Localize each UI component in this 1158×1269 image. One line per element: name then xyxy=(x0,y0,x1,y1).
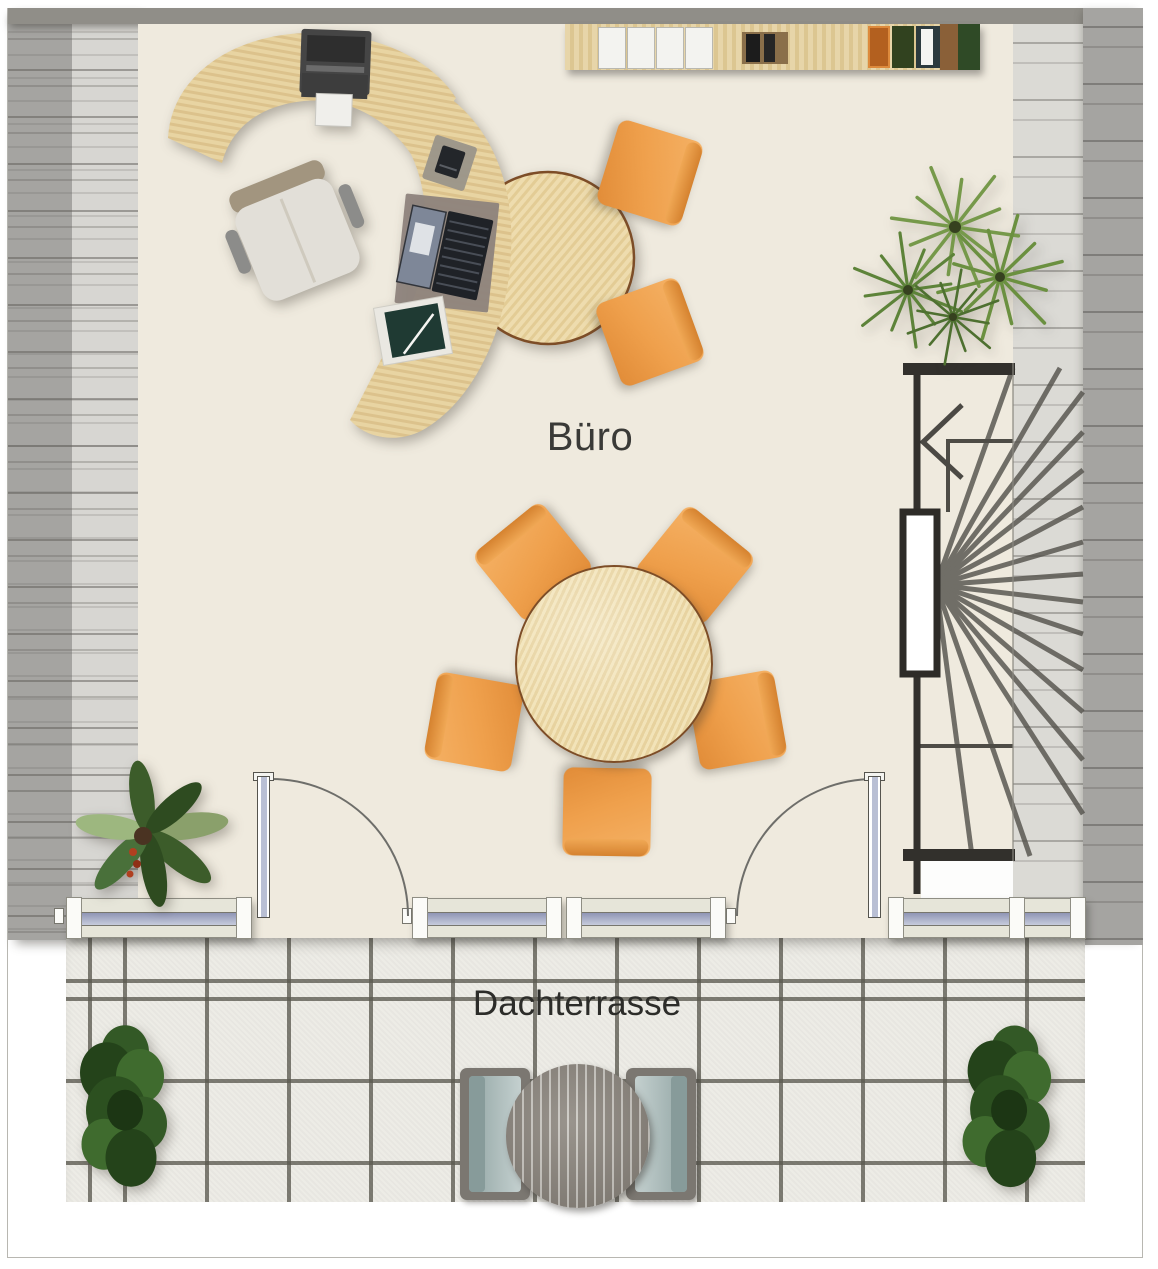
door-swing-arcs xyxy=(250,770,890,925)
book xyxy=(764,34,775,62)
storage-box-green xyxy=(892,26,914,68)
terrace-door-left xyxy=(257,776,270,918)
winder-staircase xyxy=(895,358,1095,868)
book xyxy=(746,34,760,62)
notebook-with-pen xyxy=(373,296,452,365)
stair-handrail-wall xyxy=(903,512,937,674)
palm-plant xyxy=(850,165,1060,380)
door-stop xyxy=(54,908,64,924)
office-swivel-chair xyxy=(211,151,380,311)
desk-group xyxy=(140,20,670,460)
paper-tray xyxy=(685,27,713,69)
window-glass xyxy=(903,912,1071,926)
terrace-bushes xyxy=(60,1000,1090,1220)
stair-bottom-wall xyxy=(903,849,1015,861)
shelf-end-cabinet xyxy=(940,24,958,70)
room-label-office: Büro xyxy=(470,415,710,460)
storage-box-orange xyxy=(868,26,890,68)
window-glass xyxy=(81,912,237,926)
door-arc-right xyxy=(737,779,874,916)
terrace-door-right xyxy=(868,776,881,918)
window-mullion xyxy=(1009,897,1025,939)
printer xyxy=(298,29,371,127)
window-right xyxy=(888,898,1086,938)
window-post xyxy=(1070,897,1086,939)
leaves xyxy=(74,759,230,909)
meeting-table xyxy=(515,565,713,763)
meeting-chair xyxy=(423,671,525,773)
door-arc-left xyxy=(271,779,408,916)
window-post xyxy=(888,897,904,939)
shelf-end-books xyxy=(958,24,980,70)
stair-landing xyxy=(921,861,1013,898)
leaf-plant xyxy=(75,760,230,910)
floor-plan: Büro Dachterrasse xyxy=(0,0,1158,1269)
binders xyxy=(916,26,940,68)
